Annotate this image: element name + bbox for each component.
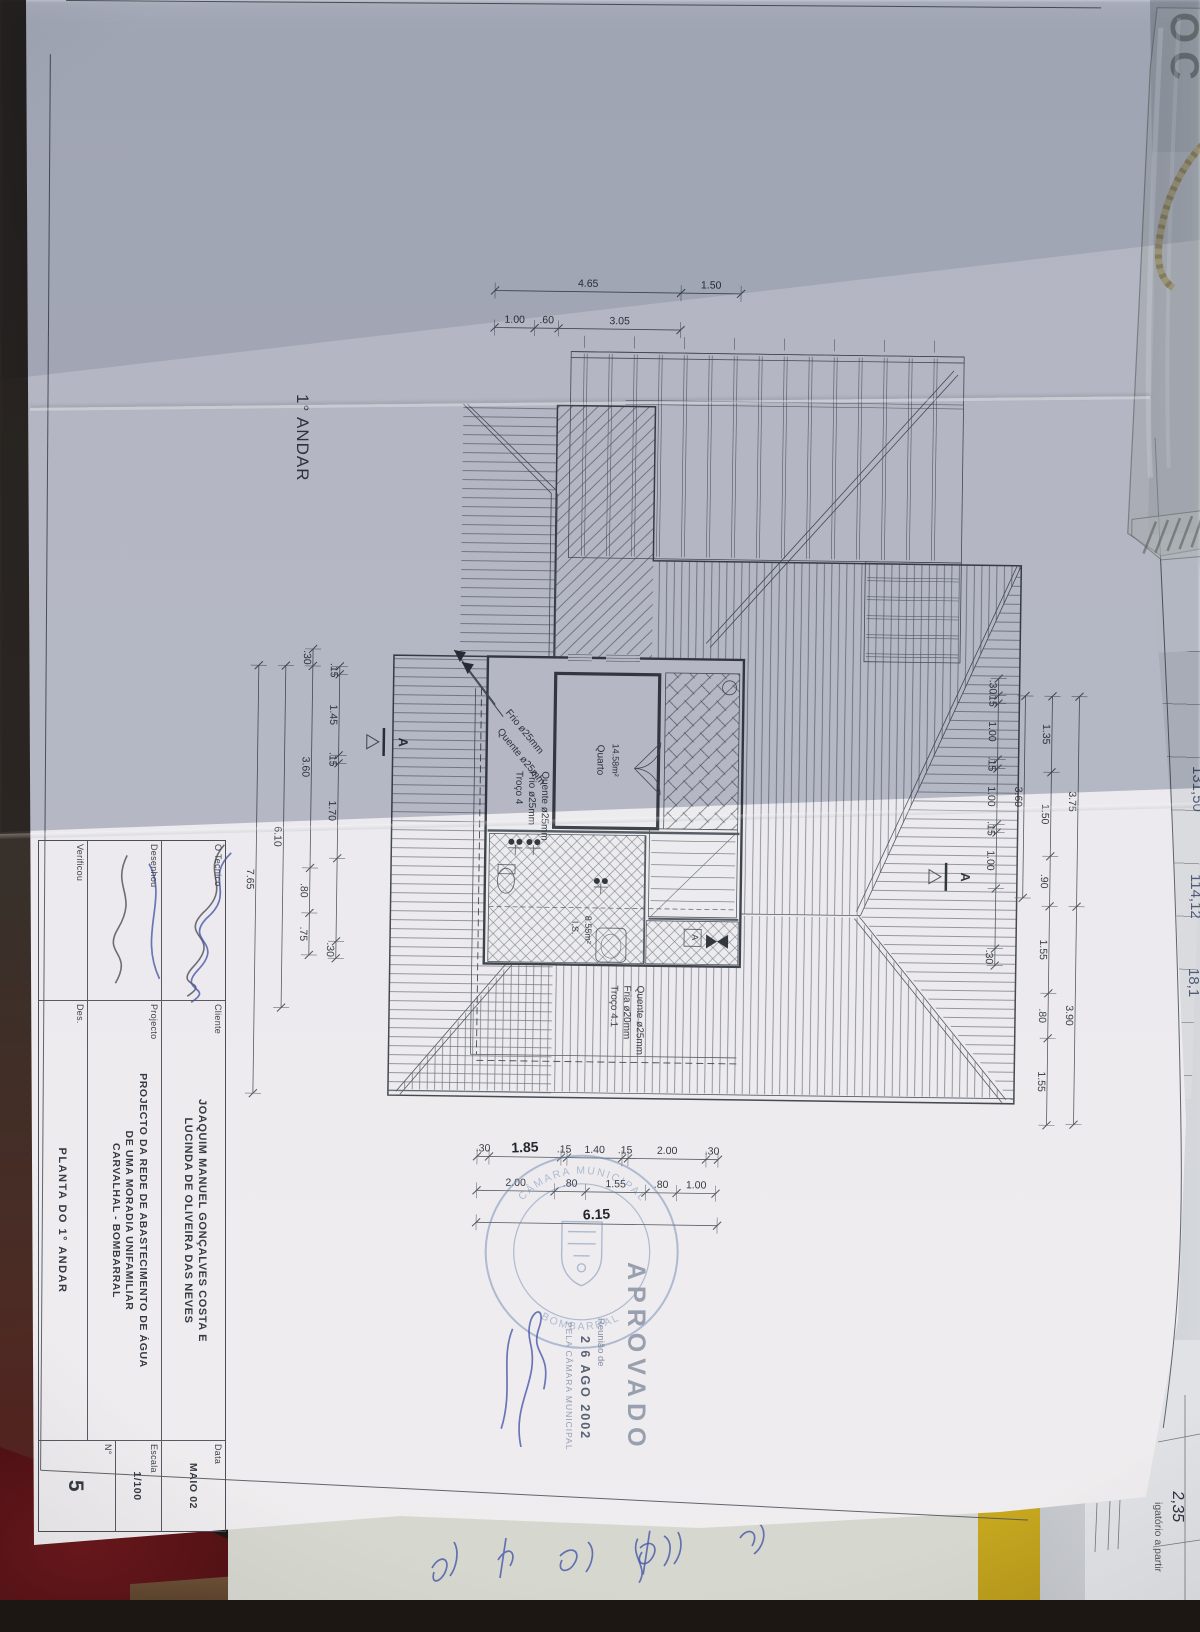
- dimension-text: 2.00: [657, 1145, 678, 1157]
- room-name: I.S.: [570, 921, 580, 935]
- dimension-text: 1.00: [984, 850, 996, 871]
- dimension-text: .30: [476, 1142, 491, 1154]
- dimension-text: 1.55: [1037, 939, 1049, 960]
- photo-of-floor-plan-document: { "drawing": { "floor_label": "1° ANDAR"…: [0, 0, 1200, 1600]
- dimension-text: .15: [985, 821, 997, 836]
- section-letter: A: [958, 872, 973, 882]
- escala-label: Escala: [149, 1444, 159, 1473]
- projecto-line: PROJECTO DA REDE DE ABASTECIMENTO DE ÁGU…: [135, 1001, 149, 1440]
- stamp-pela-text: PELA CÂMARA MUNICIPAL: [563, 1322, 574, 1482]
- desenhou-label: Desenhou: [149, 844, 159, 887]
- dimension-text: .30: [983, 950, 995, 965]
- sheet-title: PLANTA DO 1° ANDAR: [55, 1001, 69, 1440]
- dimension-text: 1.00: [686, 1179, 707, 1191]
- projecto-cell: Projecto PROJECTO DA REDE DE ABASTECIMEN…: [87, 1001, 161, 1441]
- des-cell: Des. PLANTA DO 1° ANDAR: [39, 1001, 87, 1441]
- dimension-text: 7.65: [244, 869, 256, 890]
- projecto-label: Projecto: [149, 1004, 159, 1039]
- svg-text:Fria ø20mm: Fria ø20mm: [621, 985, 633, 1039]
- verificou-cell: Verificou: [39, 841, 87, 1001]
- dimension-text: .75: [297, 926, 309, 941]
- dimension-text: 1.40: [584, 1144, 605, 1156]
- meter-box-letter: A: [690, 934, 700, 940]
- pipe-segment-label: Troço 4.1: [608, 985, 620, 1027]
- dimension-text: .30: [324, 942, 336, 957]
- tecnico-cell: O Tecnico: [161, 841, 225, 1001]
- escala-cell: Escala 1/100: [115, 1441, 161, 1531]
- dimension-text: .80: [1036, 1008, 1048, 1023]
- data-cell: Data MAIO 02: [161, 1441, 225, 1531]
- stamp-reuniao-text: Reunião de: [593, 1318, 606, 1438]
- dimension-text: 6.15: [583, 1205, 611, 1222]
- numero-cell: N° 5: [39, 1441, 115, 1531]
- cliente-cell: Cliente JOAQUIM MANUEL GONÇALVES COSTA E…: [161, 1001, 225, 1441]
- verificou-label: Verificou: [75, 844, 85, 881]
- dimension-text: .80: [298, 883, 310, 898]
- escala-value: 1/100: [129, 1441, 143, 1531]
- sheet-number: 5: [62, 1441, 89, 1531]
- dimension-text: .90: [1038, 874, 1050, 889]
- des-label: Des.: [75, 1004, 85, 1024]
- title-block: O Tecnico Desenhou Verificou Cliente JOA…: [38, 840, 226, 1532]
- cliente-label: Cliente: [213, 1004, 223, 1034]
- desenhou-cell: Desenhou: [87, 841, 161, 1001]
- dimension-text: 3.90: [1063, 1005, 1075, 1026]
- projecto-line: CARVALHAL - BOMBARRAL: [108, 1001, 122, 1440]
- dimension-text: .15: [557, 1143, 572, 1155]
- cliente-line: JOAQUIM MANUEL GONÇALVES COSTA E: [195, 1001, 209, 1440]
- data-value: MAIO 02: [185, 1441, 199, 1531]
- dimension-text: 1.85: [511, 1138, 539, 1155]
- tecnico-label: O Tecnico: [213, 844, 223, 887]
- dimension-text: .30: [705, 1145, 720, 1157]
- svg-text:Quente ø25mm: Quente ø25mm: [633, 985, 645, 1055]
- dimension-text: .15: [618, 1144, 633, 1156]
- aprovado-stamp: APROVADO: [616, 1262, 650, 1472]
- dimension-text: 1.55: [1035, 1071, 1047, 1092]
- projecto-line: DE UMA MORADIA UNIFAMILIAR: [122, 1001, 136, 1440]
- stamp-date: 2 6 AGO 2002: [574, 1336, 592, 1466]
- dimension-chain: .301.85.151.40.152.00.30: [473, 1138, 722, 1168]
- data-label: Data: [213, 1444, 223, 1464]
- bathroom-tile-floor: [488, 833, 646, 963]
- stamp-crest: [561, 1222, 602, 1287]
- dimension-chain: 6.15: [472, 1204, 721, 1234]
- room-area: 8.55m²: [583, 916, 593, 944]
- cliente-line: LUCINDA DE OLIVEIRA DAS NEVES: [180, 1001, 194, 1440]
- numero-label: N°: [103, 1444, 113, 1455]
- dimension-text: .80: [654, 1179, 669, 1191]
- staircase: [648, 829, 737, 918]
